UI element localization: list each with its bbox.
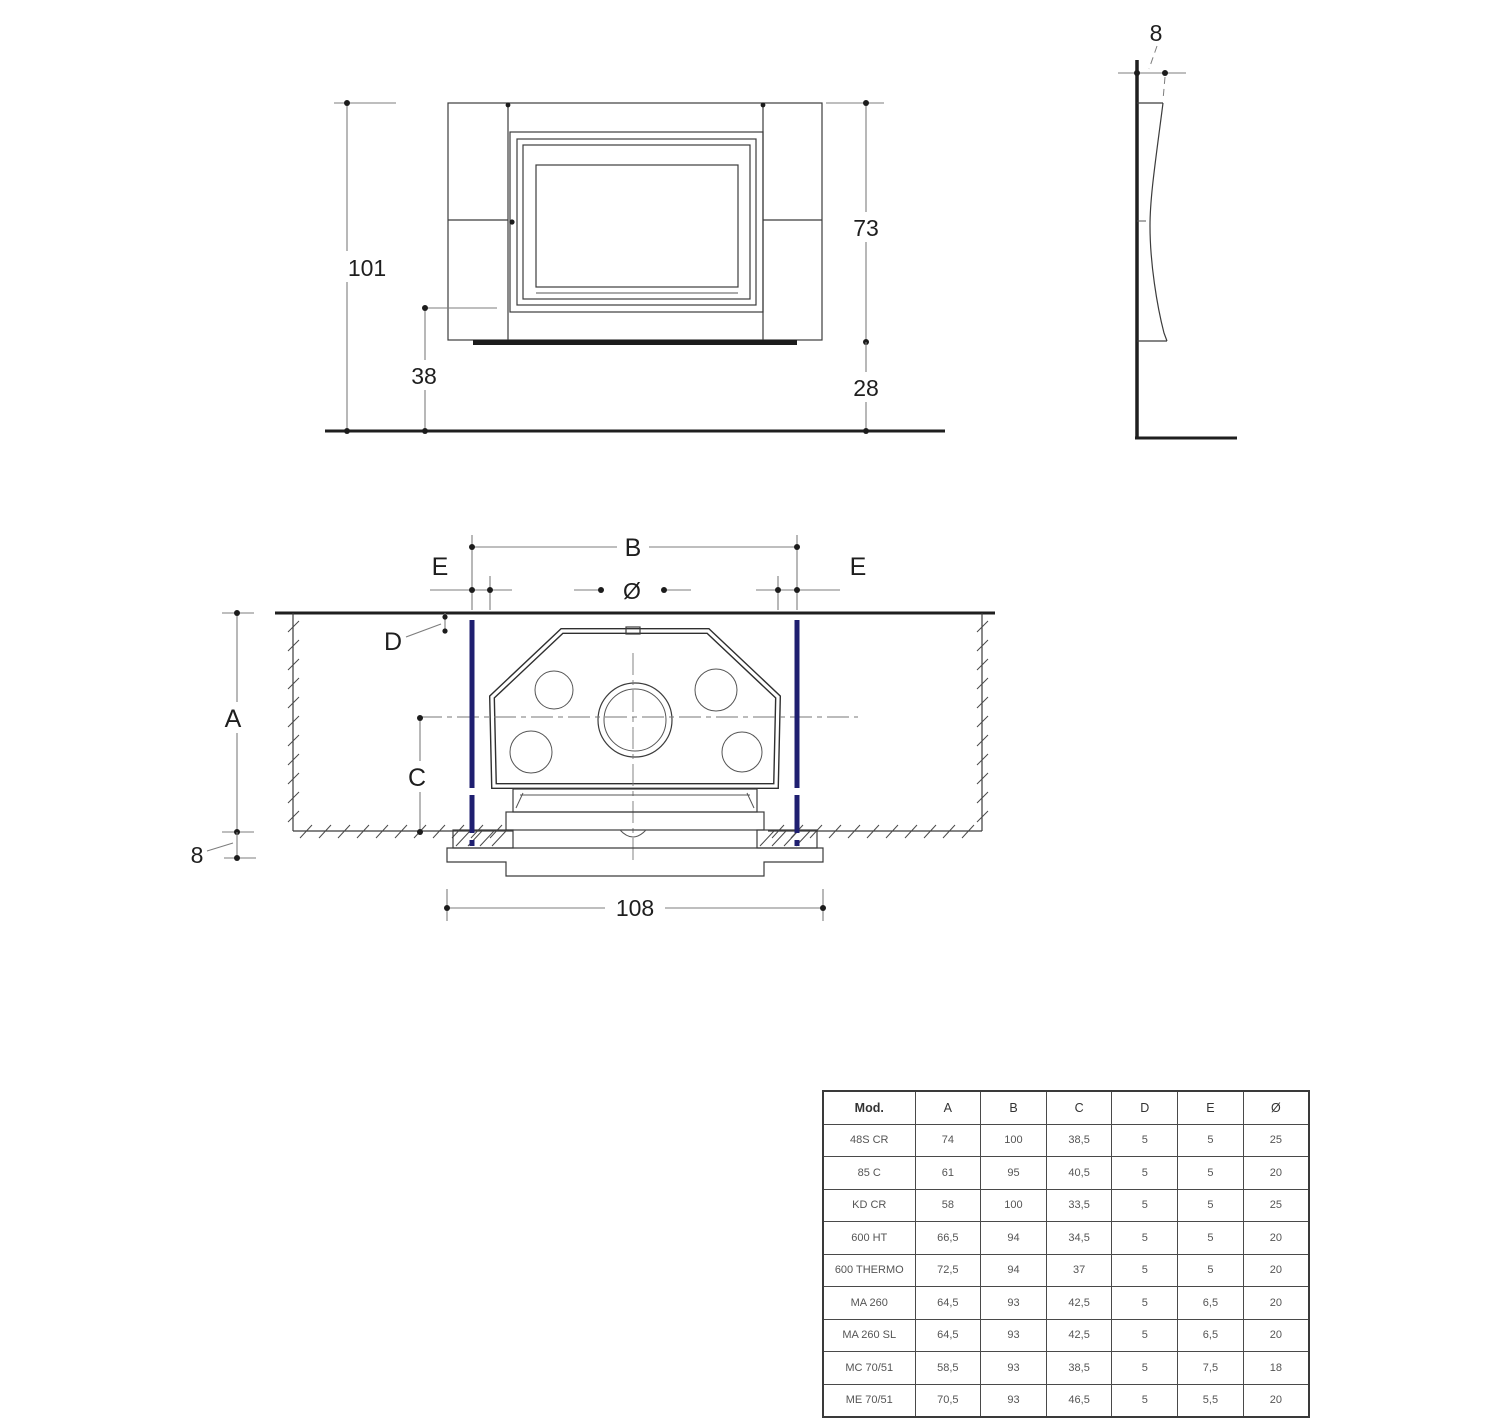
spec-value-cell: 93: [981, 1352, 1047, 1385]
spec-value-cell: 5: [1178, 1222, 1244, 1255]
spec-row: KD CR5810033,55525: [823, 1189, 1309, 1222]
spec-value-cell: 37: [1046, 1254, 1112, 1287]
spec-row: MA 260 SL64,59342,556,520: [823, 1319, 1309, 1352]
dim-label-A: A: [225, 705, 242, 733]
plan-dim-diameter: Ø: [574, 578, 691, 604]
spec-value-cell: 95: [981, 1157, 1047, 1190]
plan-dim-e-right: E: [756, 553, 866, 610]
dim-label-E-left: E: [432, 553, 449, 581]
front-dim-lower-height: 38: [403, 305, 497, 434]
dim-label-B: B: [625, 534, 642, 562]
spec-value-cell: 6,5: [1178, 1287, 1244, 1320]
plan-dim-e-left: E: [430, 553, 512, 610]
spec-value-cell: 20: [1243, 1254, 1309, 1287]
spec-value-cell: 5: [1112, 1319, 1178, 1352]
spec-value-cell: 7,5: [1178, 1352, 1244, 1385]
spec-value-cell: 66,5: [915, 1222, 981, 1255]
spec-value-cell: 93: [981, 1319, 1047, 1352]
spec-model-cell: MA 260: [823, 1287, 915, 1320]
front-frame-bar: [506, 812, 764, 830]
spec-value-cell: 61: [915, 1157, 981, 1190]
spec-value-cell: 93: [981, 1384, 1047, 1417]
spec-value-cell: 42,5: [1046, 1319, 1112, 1352]
spec-value-cell: 34,5: [1046, 1222, 1112, 1255]
spec-model-cell: 85 C: [823, 1157, 915, 1190]
spec-value-cell: 5: [1112, 1157, 1178, 1190]
technical-drawing-page: 101 73 38 28: [0, 0, 1500, 1427]
spec-row: 48S CR7410038,55525: [823, 1124, 1309, 1157]
spec-model-cell: 48S CR: [823, 1124, 915, 1157]
spec-row: 600 HT66,59434,55520: [823, 1222, 1309, 1255]
dim-label-108: 108: [616, 895, 654, 921]
spec-value-cell: 100: [981, 1189, 1047, 1222]
spec-value-cell: 5: [1178, 1157, 1244, 1190]
dim-label-E-right: E: [850, 553, 867, 581]
spec-value-cell: 20: [1243, 1157, 1309, 1190]
spec-value-cell: 20: [1243, 1384, 1309, 1417]
dim-label-depth-8: 8: [1150, 20, 1163, 46]
spec-value-cell: 5: [1112, 1352, 1178, 1385]
plan-view: B E E Ø: [191, 531, 995, 923]
dim-label-38: 38: [411, 363, 437, 389]
spec-header-cell: E: [1178, 1091, 1244, 1124]
spec-value-cell: 94: [981, 1222, 1047, 1255]
spec-value-cell: 72,5: [915, 1254, 981, 1287]
spec-value-cell: 58,5: [915, 1352, 981, 1385]
dim-label-73: 73: [853, 215, 879, 241]
spec-value-cell: 5: [1112, 1254, 1178, 1287]
spec-row: MA 26064,59342,556,520: [823, 1287, 1309, 1320]
spec-model-cell: KD CR: [823, 1189, 915, 1222]
front-bar: [513, 789, 757, 812]
spec-header-cell: B: [981, 1091, 1047, 1124]
spec-table: Mod.ABCDEØ 48S CR7410038,5552585 C619540…: [822, 1090, 1310, 1418]
firebox-outline-outer: [492, 631, 778, 786]
spec-value-cell: 42,5: [1046, 1287, 1112, 1320]
dim-label-C: C: [408, 764, 426, 792]
spec-value-cell: 5,5: [1178, 1384, 1244, 1417]
front-insert: [509, 132, 763, 312]
spec-model-cell: MC 70/51: [823, 1352, 915, 1385]
spec-value-cell: 33,5: [1046, 1189, 1112, 1222]
spec-value-cell: 20: [1243, 1222, 1309, 1255]
spec-value-cell: 46,5: [1046, 1384, 1112, 1417]
side-profile: [1137, 103, 1167, 341]
spec-value-cell: 58: [915, 1189, 981, 1222]
spec-header-cell: C: [1046, 1091, 1112, 1124]
plan-fireplace-body: [420, 627, 858, 876]
spec-value-cell: 25: [1243, 1189, 1309, 1222]
front-surround: [448, 103, 822, 340]
front-dim-base-height: 28: [845, 342, 887, 434]
base-plate: [447, 848, 823, 876]
plan-dim-base-width: 108: [444, 889, 826, 923]
spec-value-cell: 18: [1243, 1352, 1309, 1385]
spec-value-cell: 64,5: [915, 1287, 981, 1320]
spec-value-cell: 40,5: [1046, 1157, 1112, 1190]
spec-value-cell: 5: [1178, 1124, 1244, 1157]
spec-value-cell: 20: [1243, 1319, 1309, 1352]
spec-value-cell: 5: [1112, 1287, 1178, 1320]
spec-value-cell: 6,5: [1178, 1319, 1244, 1352]
dim-label-gap-8: 8: [191, 842, 204, 868]
dim-label-101: 101: [348, 255, 386, 281]
front-dim-insert-height: 73: [826, 100, 887, 345]
spec-value-cell: 5: [1178, 1254, 1244, 1287]
side-view: 8: [1118, 20, 1237, 438]
spec-value-cell: 5: [1178, 1189, 1244, 1222]
spec-value-cell: 70,5: [915, 1384, 981, 1417]
door-handle: [509, 219, 514, 224]
spec-row: ME 70/5170,59346,555,520: [823, 1384, 1309, 1417]
spec-model-cell: 600 THERMO: [823, 1254, 915, 1287]
front-hearth-base: [473, 340, 797, 345]
spec-model-cell: MA 260 SL: [823, 1319, 915, 1352]
spec-value-cell: 38,5: [1046, 1352, 1112, 1385]
spec-header-cell: Mod.: [823, 1091, 915, 1124]
spec-value-cell: 94: [981, 1254, 1047, 1287]
plan-dim-a: A: [218, 610, 254, 835]
spec-value-cell: 74: [915, 1124, 981, 1157]
spec-header-cell: Ø: [1243, 1091, 1309, 1124]
spec-value-cell: 5: [1112, 1124, 1178, 1157]
spec-value-cell: 5: [1112, 1384, 1178, 1417]
spec-value-cell: 20: [1243, 1287, 1309, 1320]
side-dim-depth: 8: [1118, 20, 1186, 100]
model-dimensions-table: Mod.ABCDEØ 48S CR7410038,5552585 C619540…: [822, 1090, 1310, 1418]
spec-value-cell: 93: [981, 1287, 1047, 1320]
spec-row: 600 THERMO72,594375520: [823, 1254, 1309, 1287]
spec-row: 85 C619540,55520: [823, 1157, 1309, 1190]
spec-value-cell: 5: [1112, 1222, 1178, 1255]
front-view: 101 73 38 28: [325, 100, 945, 434]
spec-header-cell: A: [915, 1091, 981, 1124]
plan-dim-c: C: [402, 715, 432, 835]
dim-label-diameter: Ø: [623, 578, 641, 604]
front-dim-total-height: 101: [334, 100, 396, 434]
dim-label-28: 28: [853, 375, 879, 401]
spec-row: MC 70/5158,59338,557,518: [823, 1352, 1309, 1385]
dim-label-D: D: [384, 628, 402, 656]
spec-value-cell: 38,5: [1046, 1124, 1112, 1157]
spec-model-cell: 600 HT: [823, 1222, 915, 1255]
plan-dim-wall-gap: 8: [191, 832, 256, 868]
spec-model-cell: ME 70/51: [823, 1384, 915, 1417]
spec-header-cell: D: [1112, 1091, 1178, 1124]
spec-header-row: Mod.ABCDEØ: [823, 1091, 1309, 1124]
plan-dim-d: D: [384, 613, 448, 656]
spec-value-cell: 5: [1112, 1189, 1178, 1222]
spec-value-cell: 100: [981, 1124, 1047, 1157]
spec-value-cell: 64,5: [915, 1319, 981, 1352]
spec-value-cell: 25: [1243, 1124, 1309, 1157]
